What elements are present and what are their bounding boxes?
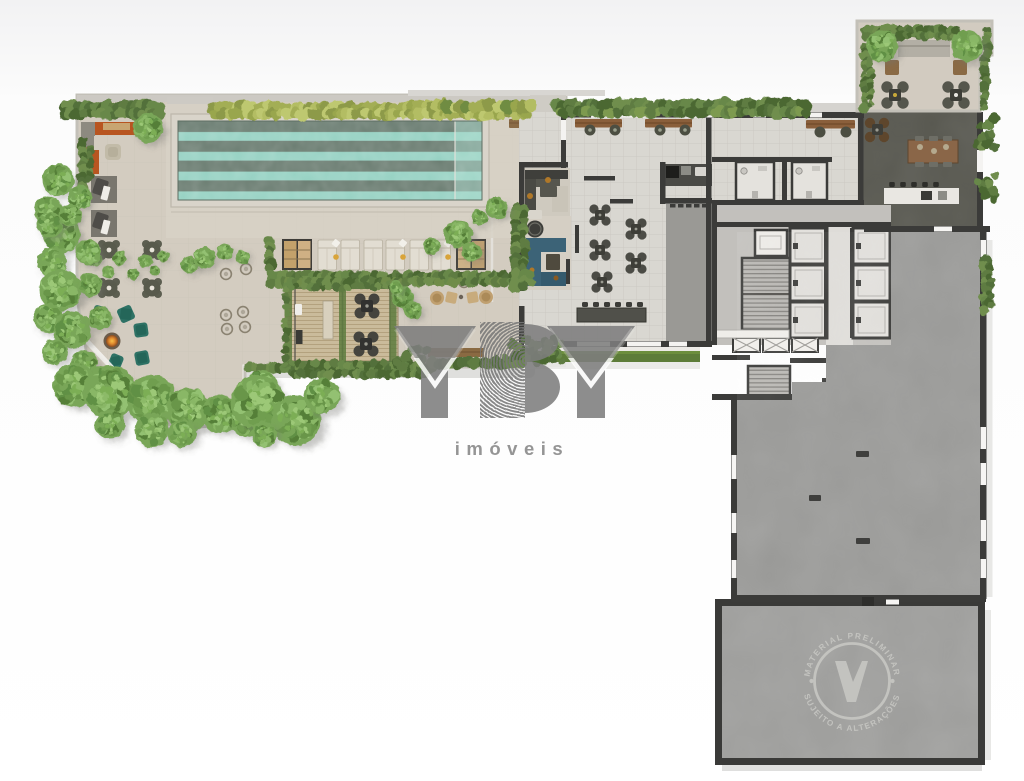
svg-text:imóveis: imóveis	[455, 438, 569, 459]
